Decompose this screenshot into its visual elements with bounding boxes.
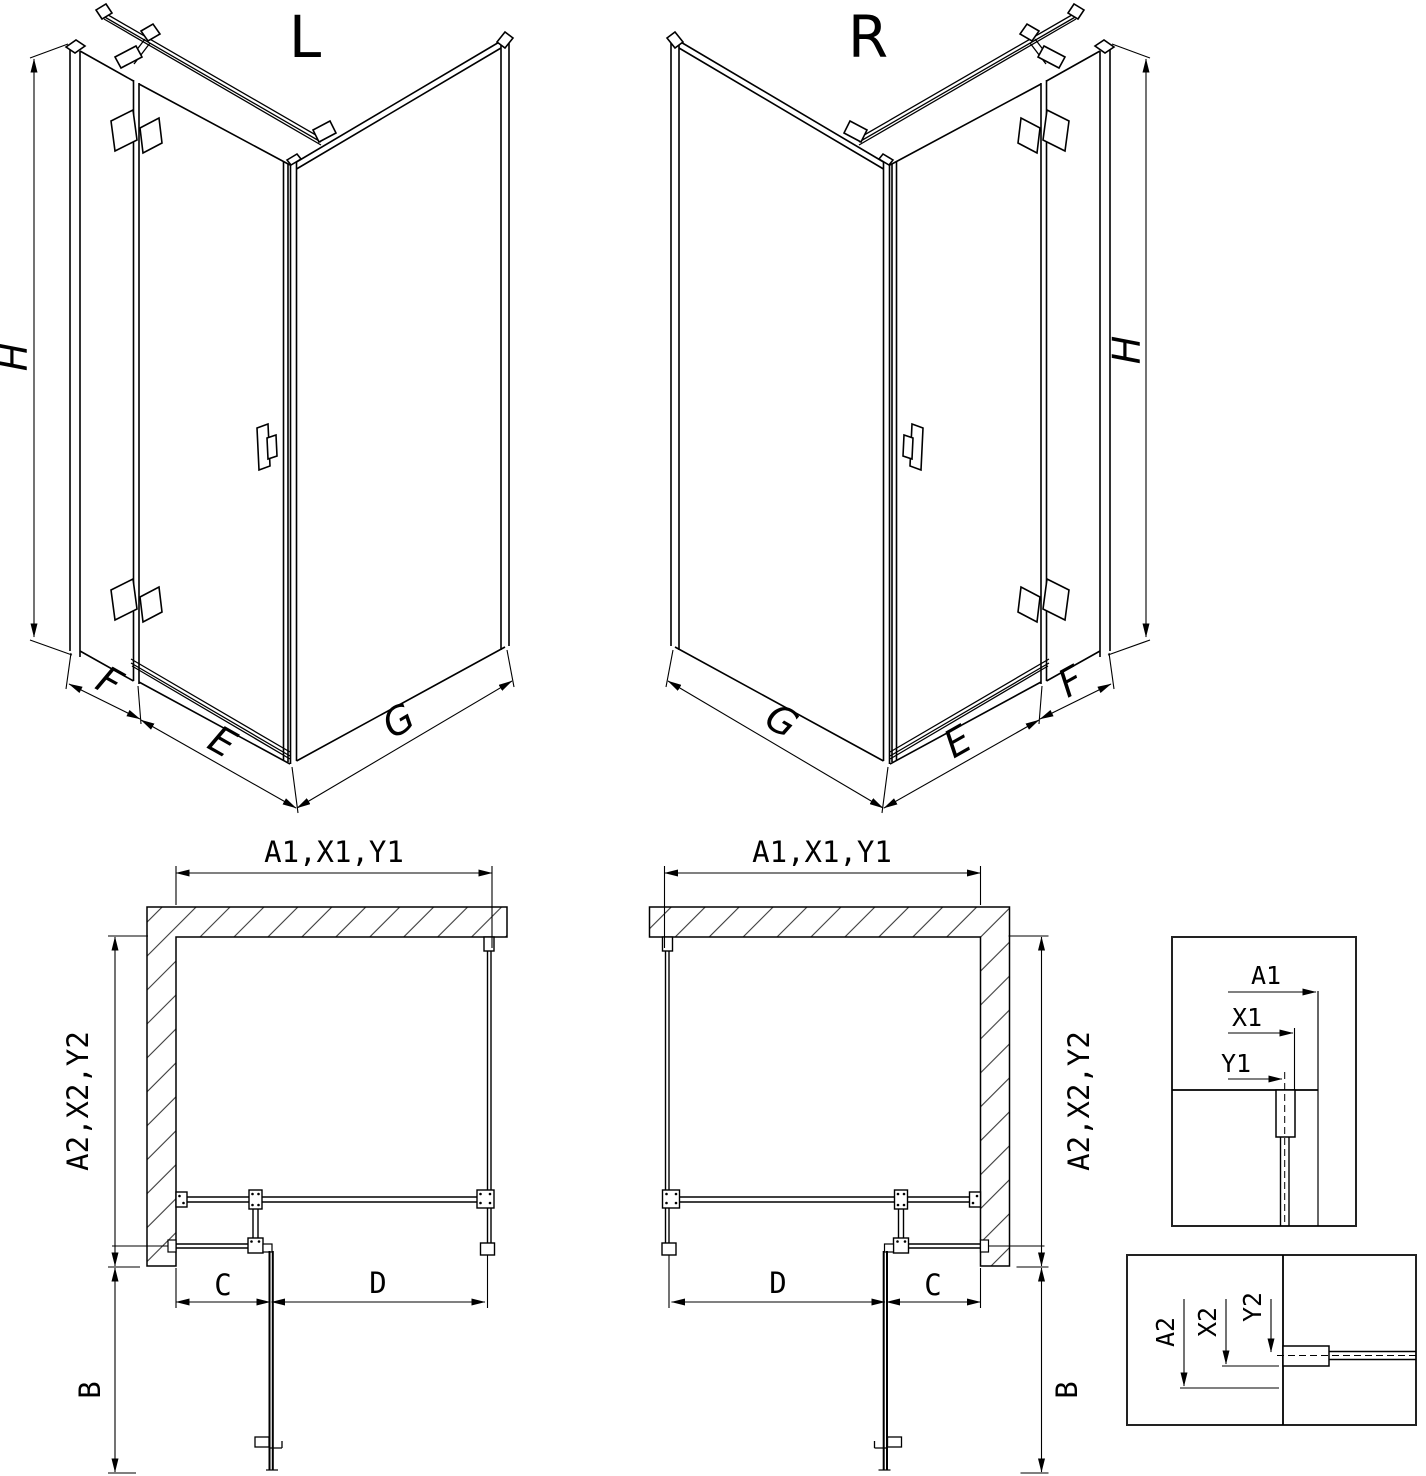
- dim-label-c-left-plan: C: [214, 1268, 231, 1302]
- dim-label-d-left-plan: D: [369, 1266, 386, 1300]
- dim-label-h-right: H: [1105, 336, 1149, 365]
- dim-label-g-right: G: [758, 694, 806, 747]
- label-variant-left: L: [289, 3, 321, 71]
- label-variant-right: R: [848, 3, 888, 71]
- dim-label-depth-left-plan: A2,X2,Y2: [61, 1031, 95, 1171]
- dim-label-d-right-plan: D: [769, 1266, 786, 1300]
- detail-label-a2: A2: [1151, 1317, 1180, 1347]
- technical-drawing-sheet: L R H F E G H F E G A1,X1,Y1 A2,X2,Y2 B …: [0, 0, 1426, 1476]
- detail-label-x1: X1: [1232, 1003, 1262, 1032]
- dim-label-b-right-plan: B: [1050, 1381, 1084, 1398]
- dim-label-e-left: E: [201, 717, 244, 767]
- dim-label-g-left: G: [375, 694, 423, 747]
- detail-label-a1: A1: [1251, 961, 1281, 990]
- detail-label-y2: Y2: [1238, 1292, 1267, 1322]
- detail-bottom-ext-lines: [1180, 1366, 1279, 1388]
- dim-label-f-right: F: [1050, 657, 1091, 707]
- wall-hatch-left-plan: [147, 907, 507, 1266]
- detail-label-x2: X2: [1193, 1307, 1222, 1337]
- shower-enclosure-drawing: L R H F E G H F E G A1,X1,Y1 A2,X2,Y2 B …: [0, 0, 1426, 1476]
- dim-label-c-right-plan: C: [924, 1268, 941, 1302]
- dim-label-width-right-plan: A1,X1,Y1: [752, 835, 892, 869]
- dim-label-b-left-plan: B: [73, 1381, 107, 1398]
- detail-label-y1: Y1: [1221, 1049, 1251, 1078]
- dim-label-f-left: F: [89, 657, 130, 707]
- dim-label-e-right: E: [936, 717, 979, 767]
- dim-label-depth-right-plan: A2,X2,Y2: [1062, 1031, 1096, 1171]
- wall-hatch-right-plan: [650, 907, 1010, 1266]
- detail-top-profile: [1276, 1090, 1295, 1137]
- dim-label-h-left: H: [0, 343, 36, 372]
- dim-label-width-left-plan: A1,X1,Y1: [264, 835, 404, 869]
